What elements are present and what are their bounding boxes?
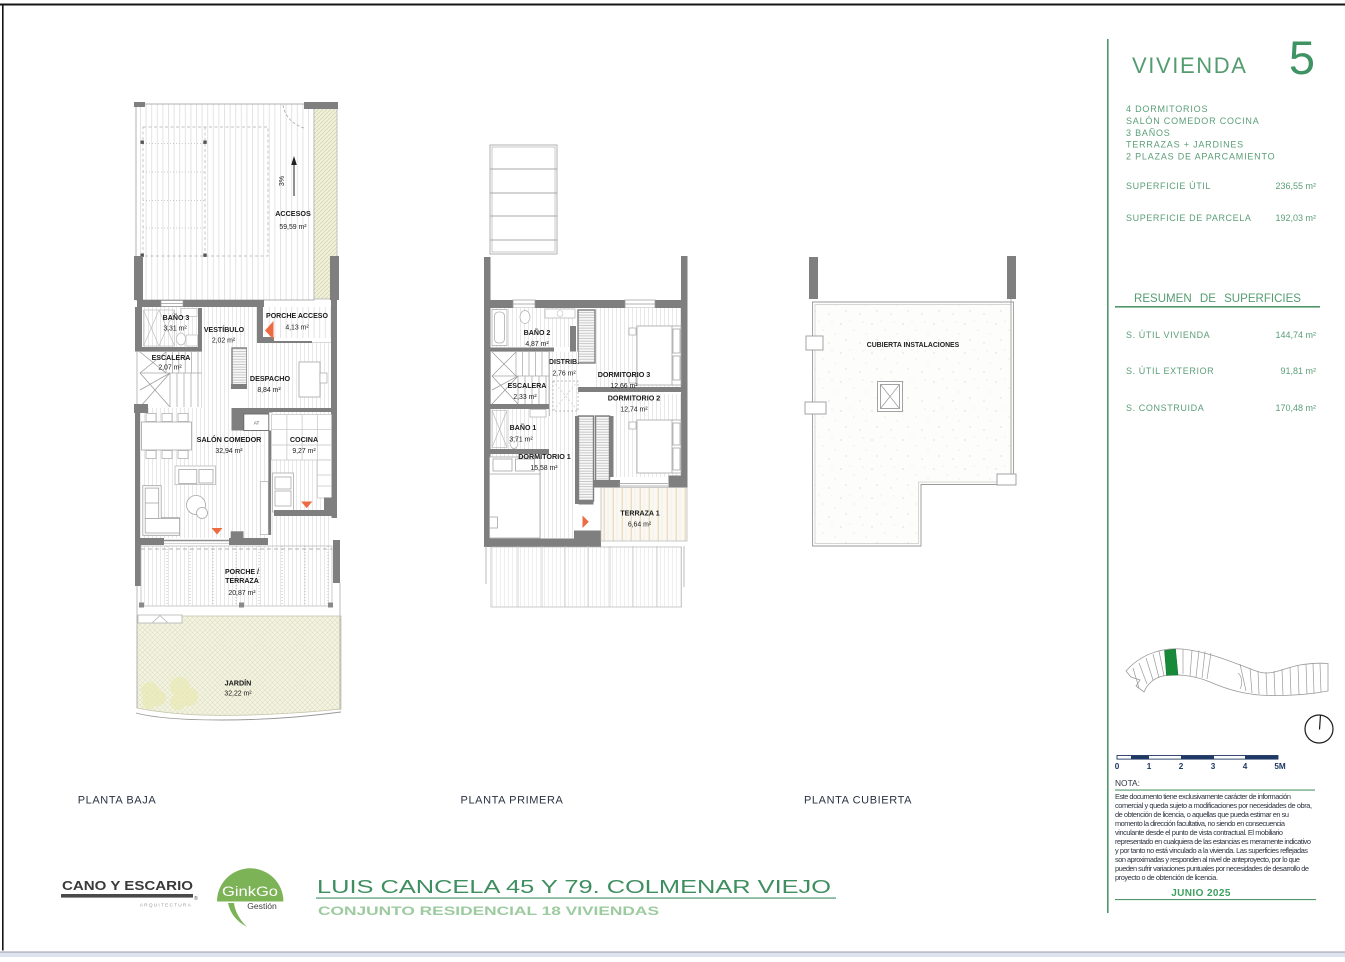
svg-text:4: 4	[1243, 762, 1248, 771]
svg-text:SALÓN COMEDOR: SALÓN COMEDOR	[197, 435, 262, 444]
svg-text:ESCALERA: ESCALERA	[152, 355, 191, 362]
svg-text:representado en cualquiera de: representado en cualquiera de las estanc…	[1115, 837, 1311, 846]
svg-text:PORCHE ACCESO: PORCHE ACCESO	[266, 313, 329, 320]
svg-text:pueden sufrir variaciones punt: pueden sufrir variaciones puntuales por …	[1115, 864, 1309, 873]
svg-text:4,13 m²: 4,13 m²	[285, 325, 309, 332]
svg-text:S. ÚTIL VIVIENDA: S. ÚTIL VIVIENDA	[1126, 330, 1210, 340]
svg-text:32,94 m²: 32,94 m²	[215, 448, 243, 455]
svg-text:4,87 m²: 4,87 m²	[525, 341, 549, 348]
svg-text:15,58 m²: 15,58 m²	[530, 465, 558, 472]
svg-text:PORCHE /: PORCHE /	[225, 569, 259, 576]
svg-text:NOTA:: NOTA:	[1115, 778, 1140, 788]
svg-text:TERRAZA: TERRAZA	[225, 578, 259, 585]
svg-text:170,48 m²: 170,48 m²	[1275, 403, 1316, 413]
svg-text:Gestión: Gestión	[247, 901, 277, 911]
svg-text:236,55 m²: 236,55 m²	[1275, 181, 1316, 191]
svg-text:JUNIO 2025: JUNIO 2025	[1171, 888, 1231, 899]
svg-text:VESTÍBULO: VESTÍBULO	[204, 325, 245, 334]
svg-text:ESCALERA: ESCALERA	[508, 383, 547, 390]
svg-text:CANO Y ESCARIO: CANO Y ESCARIO	[62, 878, 193, 893]
svg-text:3: 3	[1211, 762, 1216, 771]
svg-text:32,22 m²: 32,22 m²	[224, 691, 252, 698]
svg-text:3 BAÑOS: 3 BAÑOS	[1126, 128, 1171, 138]
svg-text:12,66 m²: 12,66 m²	[610, 383, 638, 390]
svg-text:DORMITORIO 3: DORMITORIO 3	[598, 370, 651, 379]
svg-text:144,74 m²: 144,74 m²	[1275, 330, 1316, 340]
svg-text:SALÓN COMEDOR COCINA: SALÓN COMEDOR COCINA	[1126, 116, 1260, 126]
svg-text:JARDÍN: JARDÍN	[225, 679, 252, 688]
svg-text:9,27 m²: 9,27 m²	[292, 448, 316, 455]
svg-text:TERRAZAS + JARDINES: TERRAZAS + JARDINES	[1126, 140, 1244, 150]
svg-text:2,76 m²: 2,76 m²	[552, 371, 576, 378]
svg-text:PLANTA BAJA: PLANTA BAJA	[78, 795, 157, 807]
svg-text:59,59 m²: 59,59 m²	[279, 224, 307, 231]
svg-text:192,03 m²: 192,03 m²	[1275, 213, 1316, 223]
svg-text:TERRAZA 1: TERRAZA 1	[620, 511, 659, 518]
svg-text:y por tanto no está vinculado: y por tanto no está vinculado a la vivie…	[1115, 846, 1308, 855]
svg-text:proyecto o de obtención de lic: proyecto o de obtención de licencia.	[1115, 873, 1218, 882]
svg-text:LUIS CANCELA 45 Y 79. COLMENAR: LUIS CANCELA 45 Y 79. COLMENAR VIEJO	[317, 877, 831, 897]
svg-text:RESUMEN DE SUPERFICIES: RESUMEN DE SUPERFICIES	[1134, 293, 1301, 305]
svg-text:S. CONSTRUIDA: S. CONSTRUIDA	[1126, 403, 1204, 413]
svg-text:3%: 3%	[279, 176, 286, 186]
svg-text:comercial y queda sujeto a mod: comercial y queda sujeto a modificacione…	[1115, 801, 1312, 810]
svg-text:2,07 m²: 2,07 m²	[158, 365, 182, 372]
svg-text:PLANTA CUBIERTA: PLANTA CUBIERTA	[804, 795, 912, 807]
svg-text:BAÑO 2: BAÑO 2	[524, 328, 551, 337]
svg-text:S. ÚTIL EXTERIOR: S. ÚTIL EXTERIOR	[1126, 366, 1214, 376]
svg-text:BAÑO 1: BAÑO 1	[510, 423, 537, 432]
svg-text:DESPACHO: DESPACHO	[250, 374, 291, 383]
svg-text:DISTRIB.: DISTRIB.	[549, 359, 579, 366]
svg-text:momento la dirección facultati: momento la dirección facultativa, no sie…	[1115, 819, 1286, 828]
svg-text:GinkGo: GinkGo	[222, 884, 278, 899]
svg-text:12,74 m²: 12,74 m²	[620, 407, 648, 414]
svg-text:COCINA: COCINA	[290, 435, 318, 444]
svg-text:0: 0	[1115, 762, 1120, 771]
svg-text:5: 5	[1289, 31, 1315, 84]
svg-text:91,81 m²: 91,81 m²	[1280, 366, 1316, 376]
svg-text:2: 2	[1179, 762, 1184, 771]
svg-text:4 DORMITORIOS: 4 DORMITORIOS	[1126, 104, 1208, 114]
svg-text:20,87 m²: 20,87 m²	[228, 590, 256, 597]
svg-text:®: ®	[194, 895, 198, 902]
svg-text:Este documento tiene exclusiva: Este documento tiene exclusivamente cará…	[1115, 792, 1291, 801]
svg-text:6,64 m²: 6,64 m²	[628, 522, 652, 529]
svg-text:VIVIENDA: VIVIENDA	[1132, 53, 1248, 78]
svg-text:PLANTA PRIMERA: PLANTA PRIMERA	[461, 795, 564, 807]
svg-text:CONJUNTO RESIDENCIAL 18 VIVIEN: CONJUNTO RESIDENCIAL 18 VIVIENDAS	[318, 904, 659, 918]
svg-text:3,31 m²: 3,31 m²	[163, 326, 187, 333]
svg-text:DORMITORIO 1: DORMITORIO 1	[518, 452, 571, 461]
svg-text:ARQUITECTURA: ARQUITECTURA	[140, 903, 192, 909]
svg-text:vinculante desde el punto de v: vinculante desde el punto de vista contr…	[1115, 828, 1283, 837]
svg-text:ACCESOS: ACCESOS	[275, 209, 311, 218]
svg-text:2,33 m²: 2,33 m²	[513, 394, 537, 401]
svg-text:1: 1	[1147, 762, 1152, 771]
svg-text:son aproximadas y responden al: son aproximadas y responden al nivel de …	[1115, 855, 1300, 864]
svg-text:AT: AT	[254, 421, 260, 426]
svg-text:CUBIERTA INSTALACIONES: CUBIERTA INSTALACIONES	[867, 342, 960, 349]
svg-text:8,84 m²: 8,84 m²	[257, 387, 281, 394]
svg-text:5M: 5M	[1274, 762, 1286, 771]
svg-text:DORMITORIO 2: DORMITORIO 2	[608, 394, 661, 403]
svg-text:BAÑO 3: BAÑO 3	[163, 313, 190, 322]
svg-text:2,02 m²: 2,02 m²	[212, 338, 236, 345]
svg-text:de obtención de licencia, o aq: de obtención de licencia, o aquellas que…	[1115, 810, 1289, 819]
svg-text:SUPERFICIE DE PARCELA: SUPERFICIE DE PARCELA	[1126, 213, 1251, 223]
svg-text:SUPERFICIE ÚTIL: SUPERFICIE ÚTIL	[1126, 181, 1211, 191]
svg-text:2 PLAZAS DE APARCAMIENTO: 2 PLAZAS DE APARCAMIENTO	[1126, 152, 1275, 162]
svg-text:3,71 m²: 3,71 m²	[509, 437, 533, 444]
